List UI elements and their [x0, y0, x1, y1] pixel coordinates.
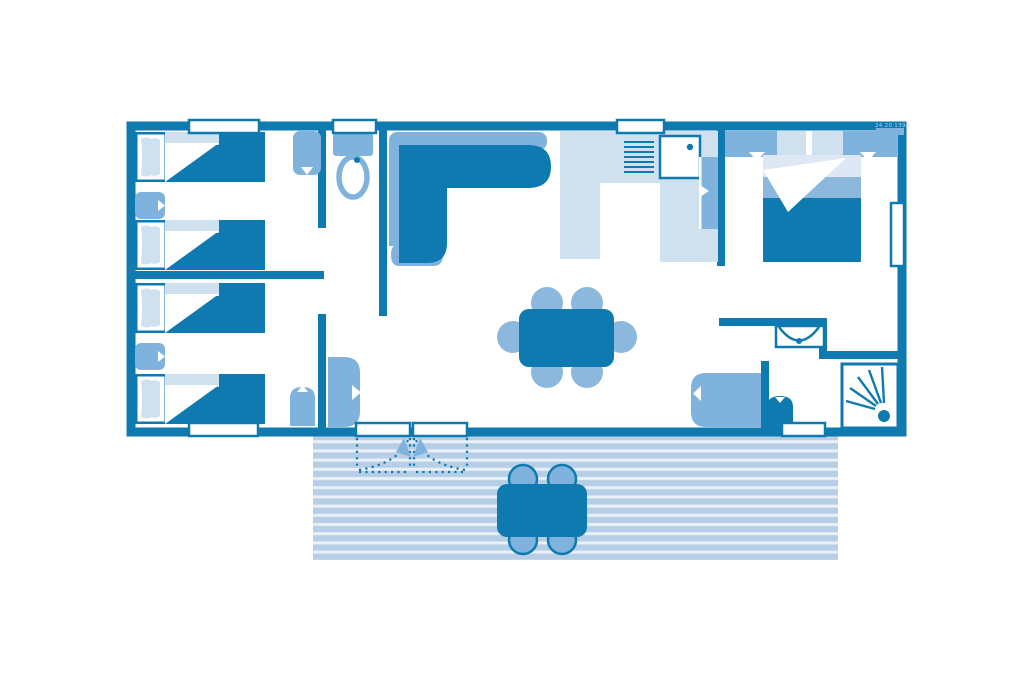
double-bed [763, 155, 861, 262]
wardrobe [293, 131, 321, 175]
bathroom-door-leaf [691, 373, 761, 427]
window-bathroom [782, 423, 825, 436]
toilet [333, 133, 373, 197]
window-kitchen [617, 120, 664, 133]
single-bed [135, 132, 265, 182]
fridge [699, 157, 718, 229]
single-bed [135, 220, 265, 270]
kitchen-counter-left [560, 131, 600, 259]
corner-cabinet [290, 385, 315, 426]
floor-plan-canvas: 24 20 1396 [0, 0, 1030, 686]
watermark-text: 24 20 1396 [875, 123, 910, 129]
dining-table [519, 309, 614, 367]
terrace [313, 436, 838, 560]
shower [842, 364, 898, 428]
window-master [891, 203, 904, 266]
window-wc [333, 120, 376, 133]
french-door-left [356, 423, 410, 436]
french-door-right [413, 423, 467, 436]
single-bed [135, 374, 265, 424]
wc [333, 133, 373, 197]
window-bedroom1 [189, 120, 259, 133]
bedside-unit [135, 343, 165, 370]
bedside-unit [135, 192, 165, 219]
single-bed [135, 283, 265, 333]
drainer [624, 142, 654, 172]
floor-plan-svg: 24 20 1396 [0, 0, 1030, 686]
kitchen-sink [660, 136, 700, 178]
terrace-table [497, 484, 587, 537]
washbasin [776, 326, 824, 347]
window-bedroom2 [189, 423, 258, 436]
hallway-door-leaf [328, 357, 361, 427]
